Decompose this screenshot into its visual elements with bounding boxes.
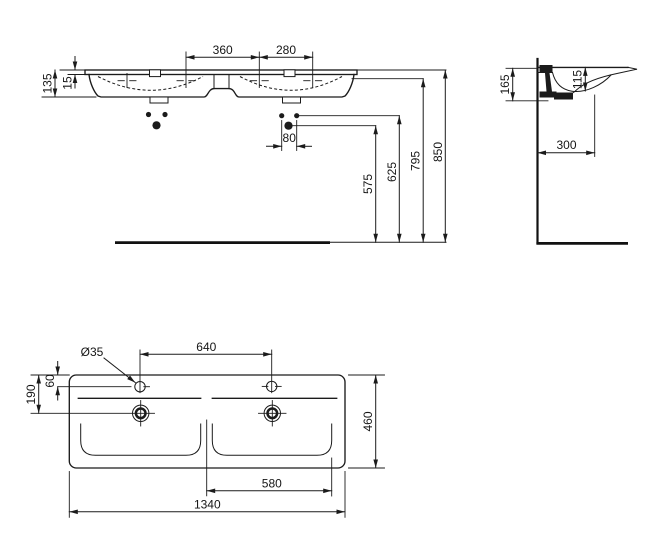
dim-115-label: 115 <box>570 70 584 89</box>
left-fixing-holes <box>146 112 168 130</box>
dim-135-label: 135 <box>41 73 55 93</box>
dimension-360: 360 <box>186 43 259 57</box>
dimension-795: 795 <box>409 79 424 243</box>
technical-drawing-page: 360 280 135 15 <box>0 0 660 550</box>
dim-625-label: 625 <box>385 162 399 182</box>
dim-575-label: 575 <box>361 174 375 194</box>
left-bowl-hidden-arc <box>98 77 203 91</box>
side-view: 165 115 300 <box>498 59 637 243</box>
left-tap-hole-plan <box>58 350 150 393</box>
dim-15-label: 15 <box>61 76 75 90</box>
dimension-625: 625 <box>385 116 400 243</box>
dimension-60: 60 <box>43 362 58 401</box>
left-drain-front <box>150 97 168 103</box>
dim-1340-label: 1340 <box>194 497 221 511</box>
right-bowl-hidden-arc <box>240 77 342 91</box>
dim-300-label: 300 <box>556 138 576 152</box>
front-view: 360 280 135 15 <box>41 43 447 243</box>
dimension-300: 300 <box>538 95 595 157</box>
dimension-850: 850 <box>431 70 446 242</box>
dimension-15: 15 <box>61 57 76 90</box>
washbasin-technical-drawing: 360 280 135 15 <box>0 0 660 550</box>
dimension-280: 280 <box>259 43 312 57</box>
left-tap-hole-front <box>150 70 161 77</box>
dimension-575: 575 <box>361 126 376 243</box>
dim-580-label: 580 <box>262 476 282 490</box>
drain-section <box>554 93 573 100</box>
dim-165-label: 165 <box>498 74 512 94</box>
basin-foot-section <box>540 92 557 98</box>
dimension-640: 640 <box>140 340 272 354</box>
right-drain-front <box>283 97 301 103</box>
plan-view: Ø35 640 60 190 460 58 <box>24 340 384 517</box>
back-ledge-section <box>540 65 553 73</box>
dim-280-label: 280 <box>276 43 296 57</box>
dim-190-label: 190 <box>24 384 38 404</box>
back-wall-section <box>545 73 552 92</box>
dia-35-label: Ø35 <box>81 345 104 359</box>
basin-plan-outline <box>69 375 345 468</box>
right-tap-hole-plan <box>262 350 281 393</box>
dim-60-label: 60 <box>43 374 57 388</box>
dim-795-label: 795 <box>409 151 423 171</box>
dimension-190: 190 <box>24 375 39 413</box>
dim-360-label: 360 <box>213 43 233 57</box>
dim-850-label: 850 <box>431 142 445 162</box>
dimension-460: 460 <box>349 375 385 468</box>
basin-front-outline <box>89 75 354 98</box>
basin-deck-front <box>85 70 357 75</box>
dim-460-label: 460 <box>361 411 375 431</box>
right-tap-hole-front <box>284 70 295 77</box>
dim-80-label: 80 <box>283 131 297 145</box>
dimension-1340: 1340 <box>69 472 345 518</box>
dimension-115: 115 <box>570 67 585 91</box>
dim-640-label: 640 <box>196 340 216 354</box>
